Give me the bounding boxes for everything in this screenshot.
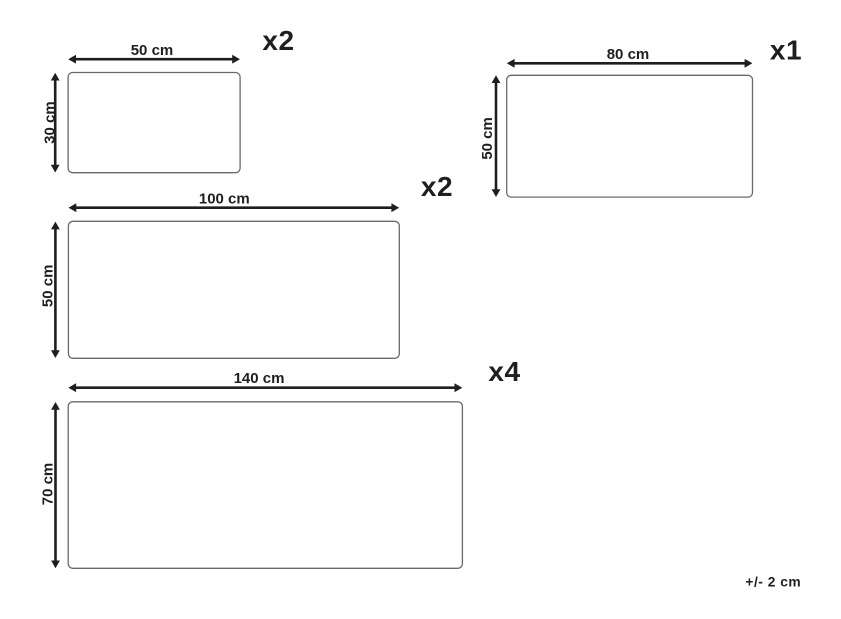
svg-text:50 cm: 50 cm [131,42,174,59]
svg-text:x4: x4 [488,356,520,387]
svg-text:50 cm: 50 cm [479,117,496,160]
svg-text:80 cm: 80 cm [607,46,650,63]
svg-text:x2: x2 [421,171,453,202]
svg-text:50 cm: 50 cm [40,265,57,308]
svg-text:140 cm: 140 cm [234,370,285,387]
svg-text:x2: x2 [262,25,294,56]
svg-text:30 cm: 30 cm [41,101,58,144]
svg-text:+/- 2 cm: +/- 2 cm [745,575,801,590]
svg-text:100 cm: 100 cm [199,190,250,207]
svg-text:70 cm: 70 cm [40,463,57,506]
svg-text:x1: x1 [770,35,802,66]
